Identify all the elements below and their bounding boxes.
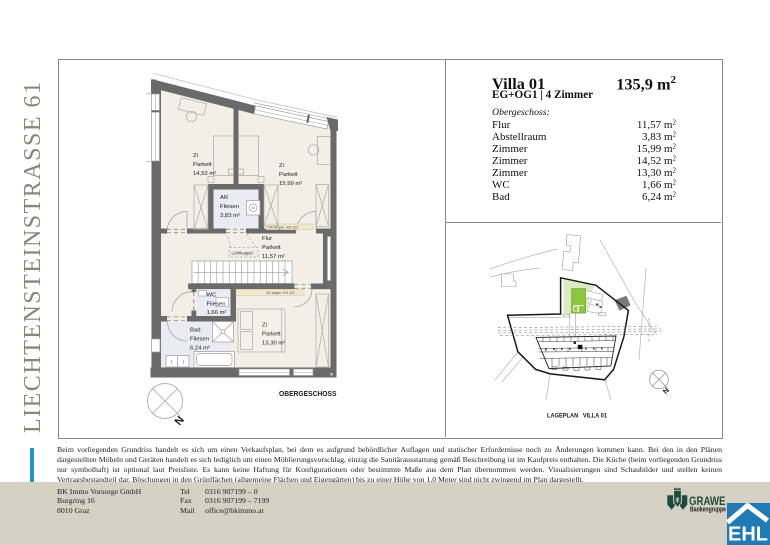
- svg-text:3,83 m²: 3,83 m²: [220, 213, 240, 219]
- svg-text:13,30 m²: 13,30 m²: [262, 341, 285, 347]
- svg-text:Bad: Bad: [190, 328, 200, 334]
- svg-text:1,66 m²: 1,66 m²: [207, 310, 227, 316]
- svg-text:14,52 m²: 14,52 m²: [193, 171, 216, 177]
- svg-text:WC: WC: [207, 293, 218, 299]
- svg-text:Flur: Flur: [262, 236, 272, 242]
- svg-text:OBERGESCHOSS: OBERGESCHOSS: [279, 389, 337, 398]
- svg-text:N: N: [173, 414, 187, 428]
- svg-text:Fliesen: Fliesen: [190, 337, 209, 343]
- svg-text:Bankengruppe: Bankengruppe: [690, 506, 726, 513]
- svg-text:6,24 m²: 6,24 m²: [190, 346, 210, 352]
- svg-text:Parkett: Parkett: [262, 245, 281, 251]
- svg-text:11,57 m²: 11,57 m²: [262, 254, 285, 260]
- svg-text:Fliesen: Fliesen: [207, 302, 226, 308]
- svg-text:Parkett: Parkett: [262, 332, 281, 338]
- svg-text:AR: AR: [220, 195, 228, 201]
- svg-text:Zi: Zi: [279, 163, 284, 169]
- svg-text:Zi: Zi: [262, 323, 267, 329]
- svg-text:Zi: Zi: [193, 153, 198, 159]
- svg-text:Parkett: Parkett: [193, 162, 212, 168]
- svg-text:Parkett: Parkett: [279, 172, 298, 178]
- svg-text:GK abgeh. RH 220: GK abgeh. RH 220: [266, 291, 295, 295]
- svg-text:15,99 m²: 15,99 m²: [279, 181, 302, 187]
- svg-text:Fliesen: Fliesen: [220, 204, 239, 210]
- svg-text:Lichtkuppel: Lichtkuppel: [232, 251, 253, 256]
- svg-text:LAGEPLAN VILLA 01: LAGEPLAN VILLA 01: [547, 413, 607, 420]
- svg-text:N: N: [661, 386, 671, 396]
- svg-text:EHL: EHL: [728, 524, 768, 545]
